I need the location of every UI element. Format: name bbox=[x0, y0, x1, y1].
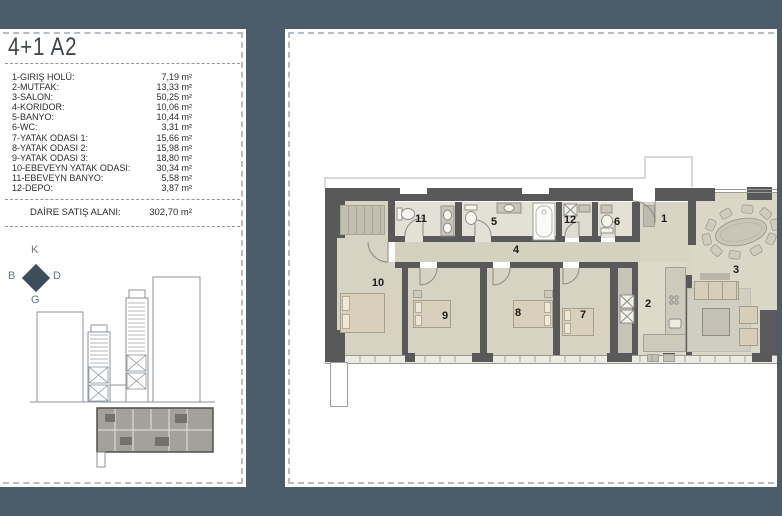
room-number-label: 10 bbox=[372, 277, 384, 289]
legend-label: 12-DEPO: bbox=[12, 183, 53, 193]
facade-outline bbox=[325, 157, 692, 188]
legend-row: 3-SALON:50,25 m² bbox=[12, 92, 192, 102]
legend-row: 4-KORIDOR:10,06 m² bbox=[12, 102, 192, 112]
room-number-label: 2 bbox=[645, 298, 651, 310]
legend-label: 3-SALON: bbox=[12, 92, 53, 102]
legend-row: 9-YATAK ODASI 3:18,80 m² bbox=[12, 153, 192, 163]
legend-value: 5,58 m² bbox=[161, 173, 192, 183]
legend-value: 15,66 m² bbox=[156, 133, 192, 143]
legend-label: 2-MUTFAK: bbox=[12, 82, 59, 92]
legend-row: 7-YATAK ODASI 1:15,66 m² bbox=[12, 133, 192, 143]
legend-value: 30,34 m² bbox=[156, 163, 192, 173]
legend-label: 6-WC: bbox=[12, 122, 38, 132]
legend-value: 3,87 m² bbox=[161, 183, 192, 193]
legend-value: 15,98 m² bbox=[156, 143, 192, 153]
floor-plan-panel: 1 2 3 4 5 6 7 8 9 10 11 12 bbox=[285, 29, 777, 487]
building-outline bbox=[30, 277, 215, 402]
legend-value: 50,25 m² bbox=[156, 92, 192, 102]
legend-row: 6-WC:3,31 m² bbox=[12, 122, 192, 132]
legend-label: 5-BANYO: bbox=[12, 112, 54, 122]
legend-value: 10,06 m² bbox=[156, 102, 192, 112]
room-number-label: 7 bbox=[580, 309, 586, 321]
legend-value: 3,31 m² bbox=[161, 122, 192, 132]
legend-value: 7,19 m² bbox=[161, 72, 192, 82]
total-area-row: DAİRE SATIŞ ALANI: 302,70 m² bbox=[30, 207, 192, 218]
unit-title: 4+1 A2 bbox=[8, 33, 77, 62]
legend-panel: 4+1 A2 1-GIRIŞ HOLÜ:7,19 m² 2-MUTFAK:13,… bbox=[0, 29, 246, 487]
compass-north-label: K bbox=[31, 244, 38, 256]
room-number-label: 3 bbox=[733, 264, 739, 276]
divider bbox=[5, 63, 240, 64]
room-number-label: 6 bbox=[614, 216, 620, 228]
legend-value: 13,33 m² bbox=[156, 82, 192, 92]
legend-label: 9-YATAK ODASI 3: bbox=[12, 153, 88, 163]
legend-row: 12-DEPO:3,87 m² bbox=[12, 183, 192, 193]
legend-row: 1-GIRIŞ HOLÜ:7,19 m² bbox=[12, 72, 192, 82]
legend-label: 8-YATAK ODASI 2: bbox=[12, 143, 88, 153]
legend-row: 2-MUTFAK:13,33 m² bbox=[12, 82, 192, 92]
room-number-label: 8 bbox=[515, 307, 521, 319]
room-number-label: 1 bbox=[661, 213, 667, 225]
compass-west-label: B bbox=[8, 270, 15, 282]
legend-label: 11-EBEVEYN BANYO: bbox=[12, 173, 103, 183]
bathtub bbox=[533, 203, 555, 240]
window-mullions bbox=[360, 355, 745, 362]
divider bbox=[5, 226, 240, 227]
bathroom-fixtures bbox=[397, 203, 613, 236]
legend-row: 11-EBEVEYN BANYO:5,58 m² bbox=[12, 173, 192, 183]
divider bbox=[5, 199, 240, 200]
legend-label: 4-KORIDOR: bbox=[12, 102, 65, 112]
legend-row: 8-YATAK ODASI 2:15,98 m² bbox=[12, 143, 192, 153]
highlighted-unit-footprint bbox=[97, 408, 213, 467]
room-number-label: 9 bbox=[442, 310, 448, 322]
legend-label: 10-EBEVEYN YATAK ODASI: bbox=[12, 163, 130, 173]
legend-value: 10,44 m² bbox=[156, 112, 192, 122]
dining-set bbox=[697, 198, 777, 266]
plan-sheet: 4+1 A2 1-GIRIŞ HOLÜ:7,19 m² 2-MUTFAK:13,… bbox=[0, 0, 782, 516]
salon-top-window bbox=[715, 190, 777, 193]
room-number-label: 5 bbox=[491, 216, 497, 228]
legend-value: 18,80 m² bbox=[156, 153, 192, 163]
legend-label: 1-GIRIŞ HOLÜ: bbox=[12, 72, 75, 82]
room-number-label: 12 bbox=[564, 214, 576, 226]
plan-line-details bbox=[285, 29, 777, 487]
building-key-plan bbox=[25, 259, 241, 485]
legend-row: 5-BANYO:10,44 m² bbox=[12, 112, 192, 122]
total-area-label: DAİRE SATIŞ ALANI: bbox=[30, 207, 121, 218]
legend-label: 7-YATAK ODASI 1: bbox=[12, 133, 88, 143]
room-legend: 1-GIRIŞ HOLÜ:7,19 m² 2-MUTFAK:13,33 m² 3… bbox=[12, 72, 192, 193]
legend-row: 10-EBEVEYN YATAK ODASI:30,34 m² bbox=[12, 163, 192, 173]
total-area-value: 302,70 m² bbox=[149, 207, 192, 218]
room-number-label: 4 bbox=[513, 244, 519, 256]
room-number-label: 11 bbox=[415, 213, 427, 225]
